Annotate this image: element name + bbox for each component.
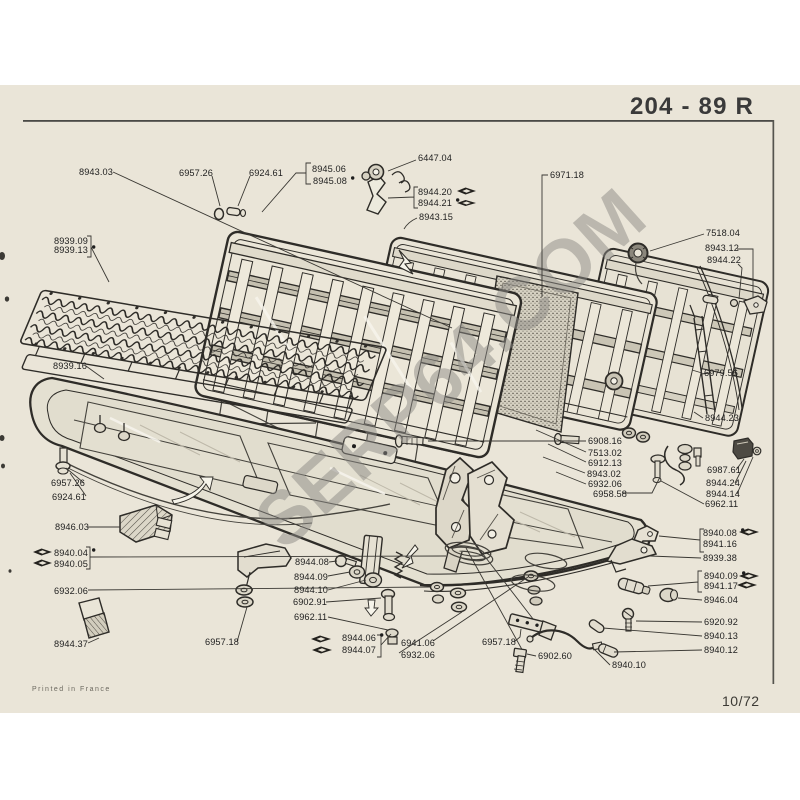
svg-text:6932.06: 6932.06 — [588, 479, 622, 489]
svg-text:8939.16: 8939.16 — [53, 361, 87, 371]
svg-text:6957.26: 6957.26 — [51, 478, 85, 488]
svg-text:8941.17: 8941.17 — [704, 581, 738, 591]
svg-text:8940.12: 8940.12 — [704, 645, 738, 655]
svg-text:6924.61: 6924.61 — [52, 492, 86, 502]
svg-text:8941.16: 8941.16 — [703, 539, 737, 549]
svg-text:7513.02: 7513.02 — [588, 448, 622, 458]
svg-text:6958.58: 6958.58 — [593, 489, 627, 499]
svg-text:8939.38: 8939.38 — [703, 553, 737, 563]
svg-text:6957.26: 6957.26 — [179, 168, 213, 178]
svg-text:8944.09: 8944.09 — [294, 572, 328, 582]
svg-text:8944.06: 8944.06 — [342, 633, 376, 643]
svg-text:6962.11: 6962.11 — [705, 499, 738, 509]
svg-text:6979.56: 6979.56 — [704, 368, 738, 378]
svg-text:8944.14: 8944.14 — [706, 489, 740, 499]
svg-text:8944.23: 8944.23 — [705, 413, 739, 423]
svg-text:6987.61: 6987.61 — [707, 465, 741, 475]
svg-text:6908.16: 6908.16 — [588, 436, 622, 446]
svg-text:8944.22: 8944.22 — [707, 255, 741, 265]
svg-text:6957.18: 6957.18 — [205, 637, 239, 647]
svg-text:8943.15: 8943.15 — [419, 212, 453, 222]
svg-text:6920.92: 6920.92 — [704, 617, 738, 627]
svg-text:6912.13: 6912.13 — [588, 458, 622, 468]
svg-text:6971.18: 6971.18 — [550, 170, 584, 180]
svg-text:Printed in France: Printed in France — [32, 686, 111, 693]
svg-text:8946.03: 8946.03 — [55, 522, 89, 532]
svg-text:8940.09: 8940.09 — [704, 571, 738, 581]
svg-text:10/72: 10/72 — [722, 693, 760, 709]
svg-text:8943.12: 8943.12 — [705, 243, 739, 253]
svg-text:6962.11: 6962.11 — [294, 612, 327, 622]
svg-text:8940.10: 8940.10 — [612, 660, 646, 670]
svg-text:8940.05: 8940.05 — [54, 559, 88, 569]
svg-text:8944.24: 8944.24 — [706, 478, 740, 488]
svg-text:8944.08: 8944.08 — [295, 557, 329, 567]
svg-text:6957.18: 6957.18 — [482, 637, 516, 647]
svg-text:8944.07: 8944.07 — [342, 645, 376, 655]
svg-text:8944.20: 8944.20 — [418, 187, 452, 197]
svg-text:6902.91: 6902.91 — [293, 597, 327, 607]
svg-text:8944.21: 8944.21 — [418, 198, 452, 208]
svg-text:7518.04: 7518.04 — [706, 228, 740, 238]
svg-text:8944.10: 8944.10 — [294, 585, 328, 595]
svg-text:204 - 89 R: 204 - 89 R — [630, 93, 754, 120]
svg-text:8945.08: 8945.08 — [313, 176, 347, 186]
svg-text:6902.60: 6902.60 — [538, 651, 572, 661]
svg-text:8940.04: 8940.04 — [54, 548, 88, 558]
svg-text:6924.61: 6924.61 — [249, 168, 283, 178]
svg-text:8944.37: 8944.37 — [54, 639, 88, 649]
svg-text:6932.06: 6932.06 — [54, 586, 88, 596]
svg-text:8943.02: 8943.02 — [587, 469, 621, 479]
svg-text:6932.06: 6932.06 — [401, 650, 435, 660]
svg-text:8940.13: 8940.13 — [704, 631, 738, 641]
svg-text:6941.06: 6941.06 — [401, 638, 435, 648]
svg-text:8945.06: 8945.06 — [312, 164, 346, 174]
svg-text:8940.08: 8940.08 — [703, 528, 737, 538]
svg-text:8939.13: 8939.13 — [54, 245, 88, 255]
svg-text:6447.04: 6447.04 — [418, 153, 452, 163]
svg-text:8946.04: 8946.04 — [704, 595, 738, 605]
svg-text:8943.03: 8943.03 — [79, 167, 113, 177]
